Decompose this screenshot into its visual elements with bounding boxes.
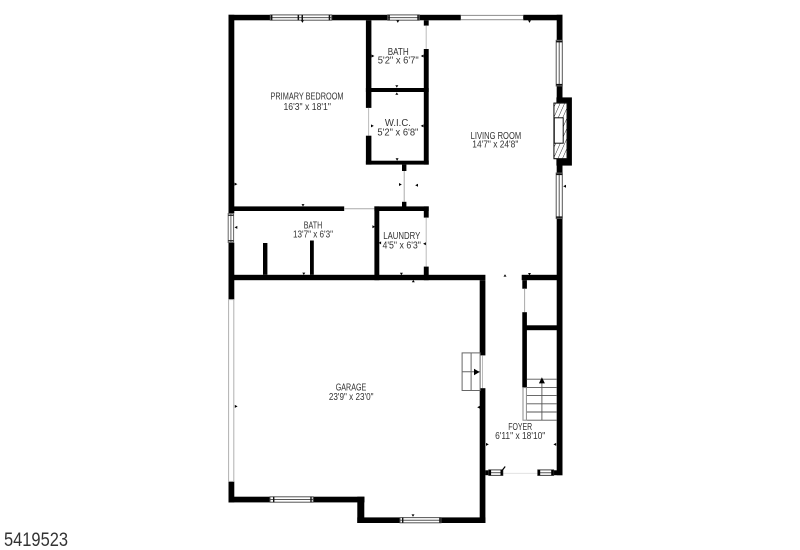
svg-text:14'7" x 24'8": 14'7" x 24'8" [472,139,518,150]
svg-text:6'11" x 18'10": 6'11" x 18'10" [495,431,546,442]
svg-text:PRIMARY BEDROOM: PRIMARY BEDROOM [271,91,344,102]
svg-text:16'3" x 18'1": 16'3" x 18'1" [283,102,331,113]
svg-text:4'5" x 6'3": 4'5" x 6'3" [382,240,421,251]
svg-text:5'2" x 6'8": 5'2" x 6'8" [377,128,418,139]
svg-text:13'7" x 6'3": 13'7" x 6'3" [293,230,333,241]
svg-text:5419523: 5419523 [4,530,68,550]
svg-text:5'2" x 6'7": 5'2" x 6'7" [378,56,419,67]
svg-text:23'9" x 23'0": 23'9" x 23'0" [329,392,374,403]
